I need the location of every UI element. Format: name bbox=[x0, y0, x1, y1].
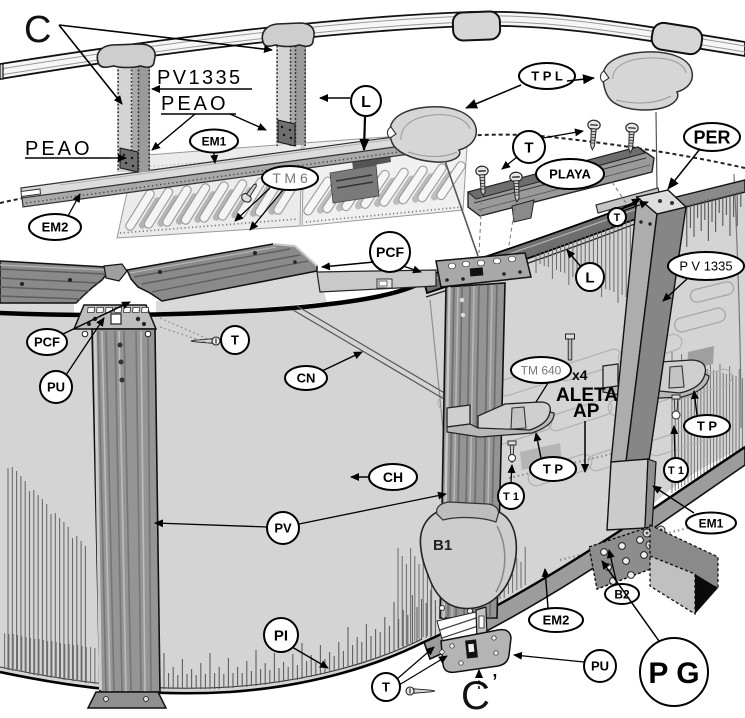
svg-text:EM1: EM1 bbox=[699, 516, 724, 530]
svg-text:CN: CN bbox=[297, 371, 316, 386]
svg-text:L: L bbox=[361, 94, 371, 111]
svg-text:x4: x4 bbox=[572, 367, 588, 383]
svg-text:TM 640: TM 640 bbox=[521, 363, 562, 377]
svg-text:T P L: T P L bbox=[531, 69, 563, 84]
svg-text:PCF: PCF bbox=[376, 244, 404, 260]
svg-text:T: T bbox=[524, 139, 533, 156]
svg-text:T: T bbox=[614, 212, 621, 224]
svg-text:CH: CH bbox=[383, 469, 403, 485]
svg-text:PEAO: PEAO bbox=[161, 93, 229, 115]
svg-text:T P: T P bbox=[543, 462, 564, 477]
svg-text:PCF: PCF bbox=[34, 335, 60, 350]
svg-text:EM2: EM2 bbox=[42, 220, 69, 235]
svg-text:EM1: EM1 bbox=[202, 134, 227, 148]
svg-text:T: T bbox=[382, 680, 390, 695]
svg-text:T 1: T 1 bbox=[503, 491, 519, 503]
svg-text:PV1335: PV1335 bbox=[157, 67, 243, 89]
svg-text:PEAO: PEAO bbox=[25, 138, 93, 160]
svg-text:T M 6: T M 6 bbox=[272, 170, 308, 186]
svg-text:PI: PI bbox=[274, 627, 288, 644]
svg-text:B1: B1 bbox=[433, 537, 452, 554]
svg-text:P G: P G bbox=[648, 657, 699, 690]
svg-text:PV: PV bbox=[274, 521, 292, 536]
svg-text:PU: PU bbox=[47, 380, 65, 395]
svg-text:AP: AP bbox=[573, 401, 600, 422]
svg-text:P V 1335: P V 1335 bbox=[679, 259, 732, 274]
svg-text:T 1: T 1 bbox=[668, 465, 684, 477]
svg-text:T: T bbox=[231, 333, 239, 348]
svg-text:PER: PER bbox=[693, 127, 730, 147]
svg-text:PU: PU bbox=[591, 659, 609, 674]
svg-text:L: L bbox=[585, 269, 594, 286]
svg-text:C: C bbox=[24, 9, 51, 51]
svg-text:C: C bbox=[461, 674, 490, 718]
svg-text:PLAYA: PLAYA bbox=[549, 167, 591, 182]
svg-text:EM2: EM2 bbox=[543, 613, 570, 628]
svg-text:’: ’ bbox=[492, 668, 498, 698]
svg-text:T P: T P bbox=[697, 419, 718, 434]
